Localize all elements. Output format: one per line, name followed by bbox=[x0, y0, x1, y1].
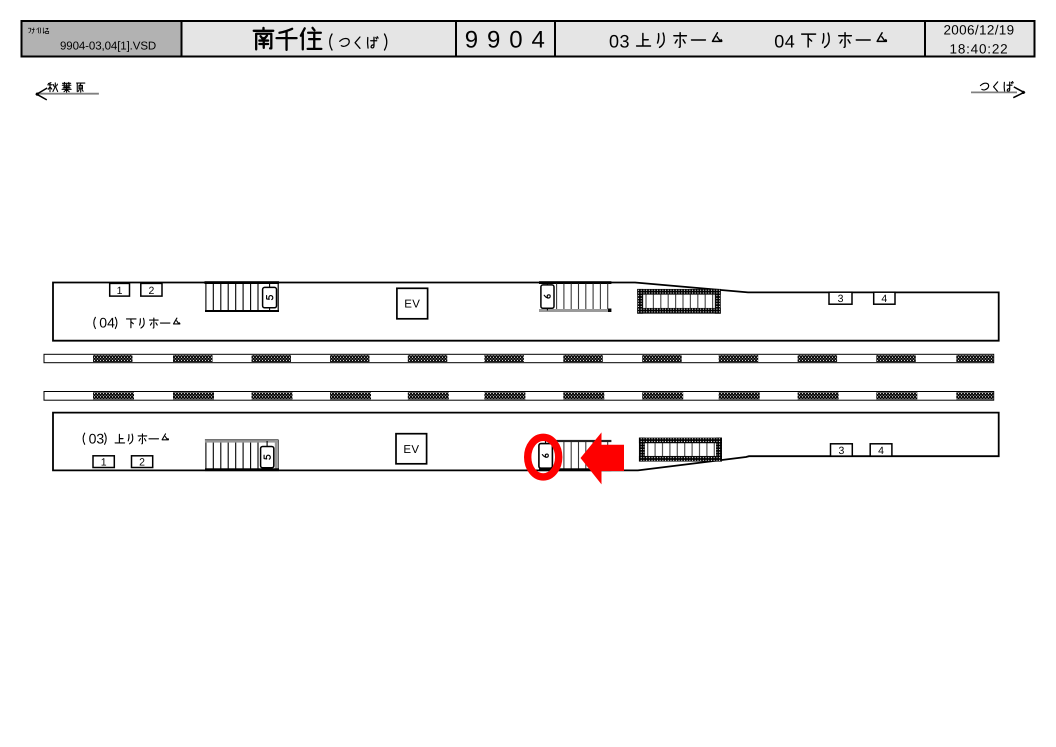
svg-text:4: 4 bbox=[532, 26, 545, 53]
svg-text:3: 3 bbox=[838, 293, 844, 305]
svg-text:18:40:22: 18:40:22 bbox=[950, 42, 1009, 57]
svg-text:2006/12/19: 2006/12/19 bbox=[943, 22, 1014, 37]
svg-text:2: 2 bbox=[148, 285, 154, 297]
svg-text:4: 4 bbox=[878, 445, 884, 457]
svg-text:1: 1 bbox=[101, 457, 107, 469]
svg-text:EV: EV bbox=[404, 299, 420, 311]
svg-text:3: 3 bbox=[838, 445, 844, 457]
svg-text:03: 03 bbox=[609, 31, 630, 51]
svg-text:2: 2 bbox=[139, 457, 145, 469]
svg-text:04: 04 bbox=[774, 31, 795, 51]
svg-text:9904-03,04[1].VSD: 9904-03,04[1].VSD bbox=[60, 41, 156, 53]
svg-text:04: 04 bbox=[99, 315, 115, 331]
svg-text:03: 03 bbox=[89, 430, 105, 446]
svg-text:9: 9 bbox=[487, 26, 500, 53]
svg-text:0: 0 bbox=[509, 26, 522, 53]
svg-text:9: 9 bbox=[465, 26, 478, 53]
svg-text:4: 4 bbox=[881, 293, 887, 305]
svg-text:1: 1 bbox=[117, 285, 123, 297]
svg-text:EV: EV bbox=[403, 444, 419, 456]
